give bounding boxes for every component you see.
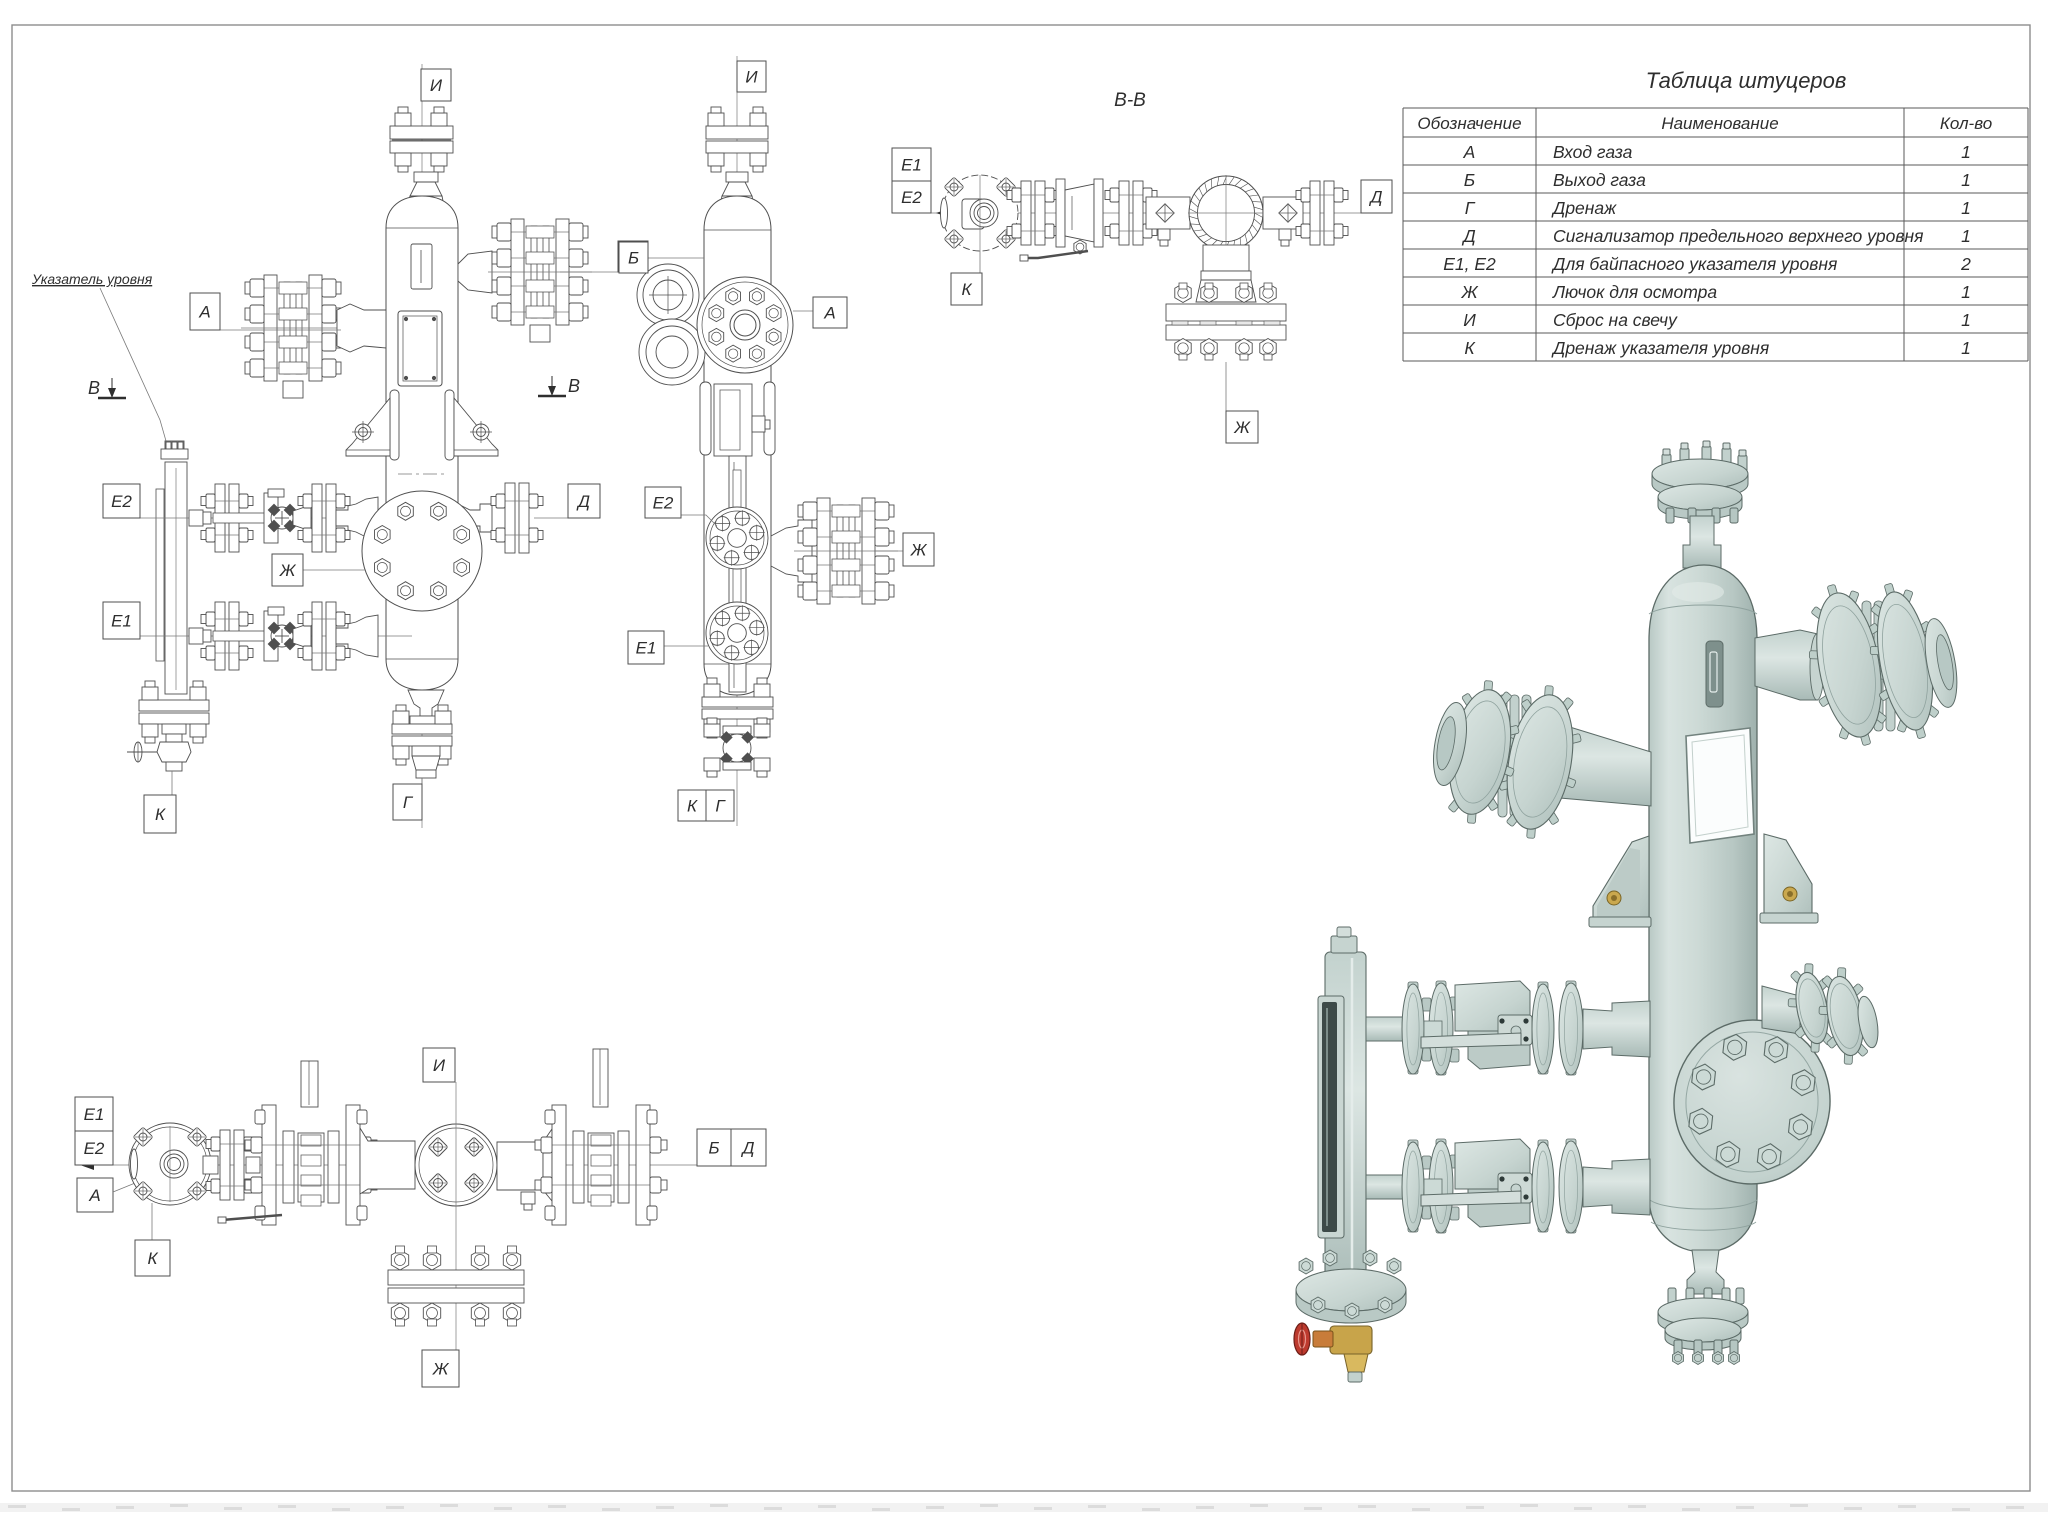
svg-text:И: И	[433, 1056, 446, 1075]
svg-text:Вход газа: Вход газа	[1553, 142, 1633, 162]
svg-text:Ж: Ж	[432, 1359, 450, 1378]
svg-text:И: И	[1463, 310, 1476, 330]
svg-text:А: А	[198, 302, 210, 321]
svg-text:Б: Б	[628, 248, 639, 267]
svg-text:1: 1	[1961, 142, 1971, 162]
svg-text:Е2: Е2	[84, 1139, 105, 1158]
svg-text:А: А	[88, 1186, 100, 1205]
svg-text:Таблица штуцеров: Таблица штуцеров	[1646, 68, 1847, 93]
svg-text:1: 1	[1961, 338, 1971, 358]
svg-text:И: И	[430, 76, 443, 95]
svg-text:Е1: Е1	[84, 1105, 105, 1124]
svg-text:Ж: Ж	[279, 561, 297, 580]
svg-text:Ж: Ж	[1233, 418, 1251, 437]
svg-text:Указатель уровня: Указатель уровня	[31, 271, 153, 287]
svg-text:Ж: Ж	[1460, 282, 1478, 302]
svg-text:2: 2	[1960, 254, 1971, 274]
svg-text:Д: Д	[1461, 226, 1475, 246]
svg-text:Дренаж указателя уровня: Дренаж указателя уровня	[1551, 338, 1769, 358]
svg-text:Наименование: Наименование	[1661, 114, 1778, 133]
svg-text:Е1: Е1	[901, 155, 922, 174]
svg-text:Для байпасного указателя уровн: Для байпасного указателя уровня	[1551, 254, 1837, 274]
svg-text:Е1: Е1	[636, 638, 657, 657]
svg-text:А: А	[823, 303, 835, 322]
svg-text:Лючок для осмотра: Лючок для осмотра	[1552, 282, 1717, 302]
svg-text:Г: Г	[1465, 198, 1476, 218]
svg-text:В: В	[88, 378, 100, 398]
svg-text:Е1: Е1	[111, 611, 132, 630]
svg-text:Е2: Е2	[901, 188, 922, 207]
svg-text:Обозначение: Обозначение	[1417, 114, 1521, 133]
svg-text:1: 1	[1961, 198, 1971, 218]
svg-text:И: И	[745, 67, 758, 86]
svg-text:Д: Д	[1369, 187, 1383, 206]
svg-text:Б: Б	[1464, 170, 1475, 190]
svg-text:Выход газа: Выход газа	[1553, 170, 1646, 190]
svg-text:1: 1	[1961, 226, 1971, 246]
svg-text:Кол-во: Кол-во	[1940, 114, 1992, 133]
svg-text:Е2: Е2	[653, 493, 674, 512]
svg-text:К: К	[961, 280, 972, 299]
svg-text:В-В: В-В	[1114, 90, 1146, 111]
svg-text:Б: Б	[708, 1138, 719, 1157]
svg-text:Сигнализатор предельного верхн: Сигнализатор предельного верхнего уровня	[1553, 226, 1923, 246]
svg-text:1: 1	[1961, 310, 1971, 330]
svg-text:1: 1	[1961, 282, 1971, 302]
svg-text:К: К	[155, 805, 166, 824]
svg-text:А: А	[1463, 142, 1476, 162]
svg-text:Е2: Е2	[111, 492, 132, 511]
svg-text:В: В	[568, 376, 580, 396]
svg-text:1: 1	[1961, 170, 1971, 190]
svg-text:Д: Д	[741, 1138, 755, 1157]
svg-text:К: К	[147, 1249, 158, 1268]
svg-text:Сброс на свечу: Сброс на свечу	[1553, 310, 1678, 330]
svg-text:К: К	[687, 796, 698, 815]
svg-text:Ж: Ж	[910, 540, 928, 559]
svg-text:Д: Д	[576, 492, 590, 511]
svg-text:Дренаж: Дренаж	[1551, 198, 1617, 218]
svg-text:Е1, Е2: Е1, Е2	[1443, 254, 1496, 274]
svg-text:К: К	[1464, 338, 1476, 358]
